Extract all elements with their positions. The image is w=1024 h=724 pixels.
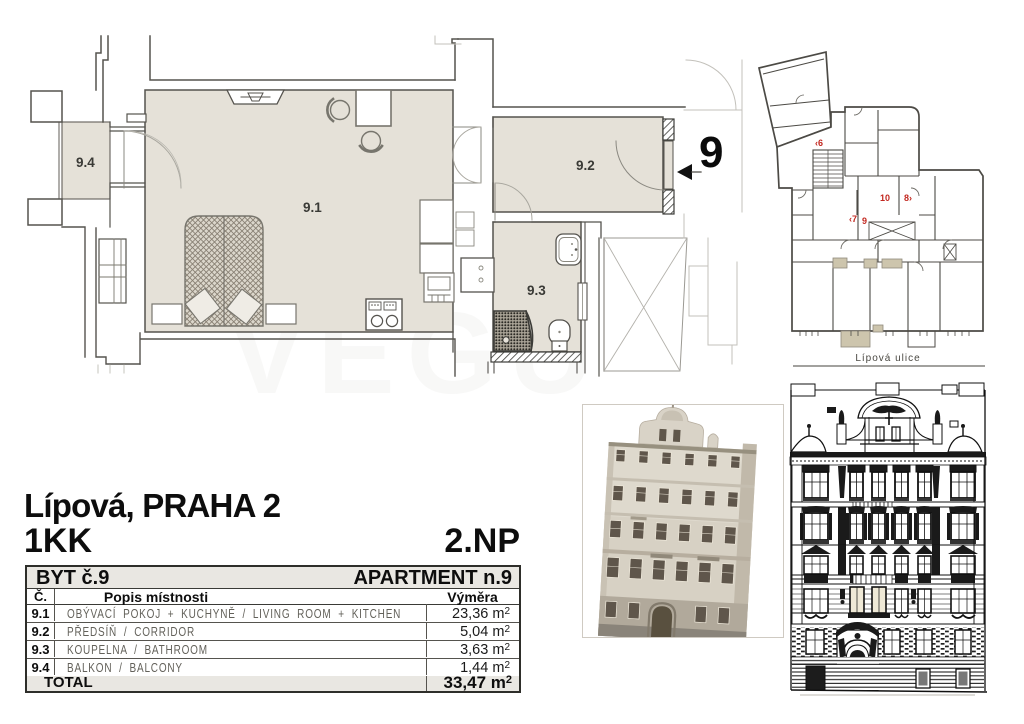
svg-text:9: 9 <box>862 216 867 226</box>
svg-text:9: 9 <box>699 128 723 177</box>
svg-text:Lípová ulice: Lípová ulice <box>855 353 920 364</box>
svg-text:8›: 8› <box>904 193 912 203</box>
svg-text:9.3: 9.3 <box>527 283 546 298</box>
svg-text:10: 10 <box>880 193 890 203</box>
svg-text:9.4: 9.4 <box>76 155 95 170</box>
svg-text:9.2: 9.2 <box>576 158 595 173</box>
svg-text:‹7: ‹7 <box>849 214 857 224</box>
svg-text:9.1: 9.1 <box>303 200 322 215</box>
svg-text:‹6: ‹6 <box>815 138 823 148</box>
